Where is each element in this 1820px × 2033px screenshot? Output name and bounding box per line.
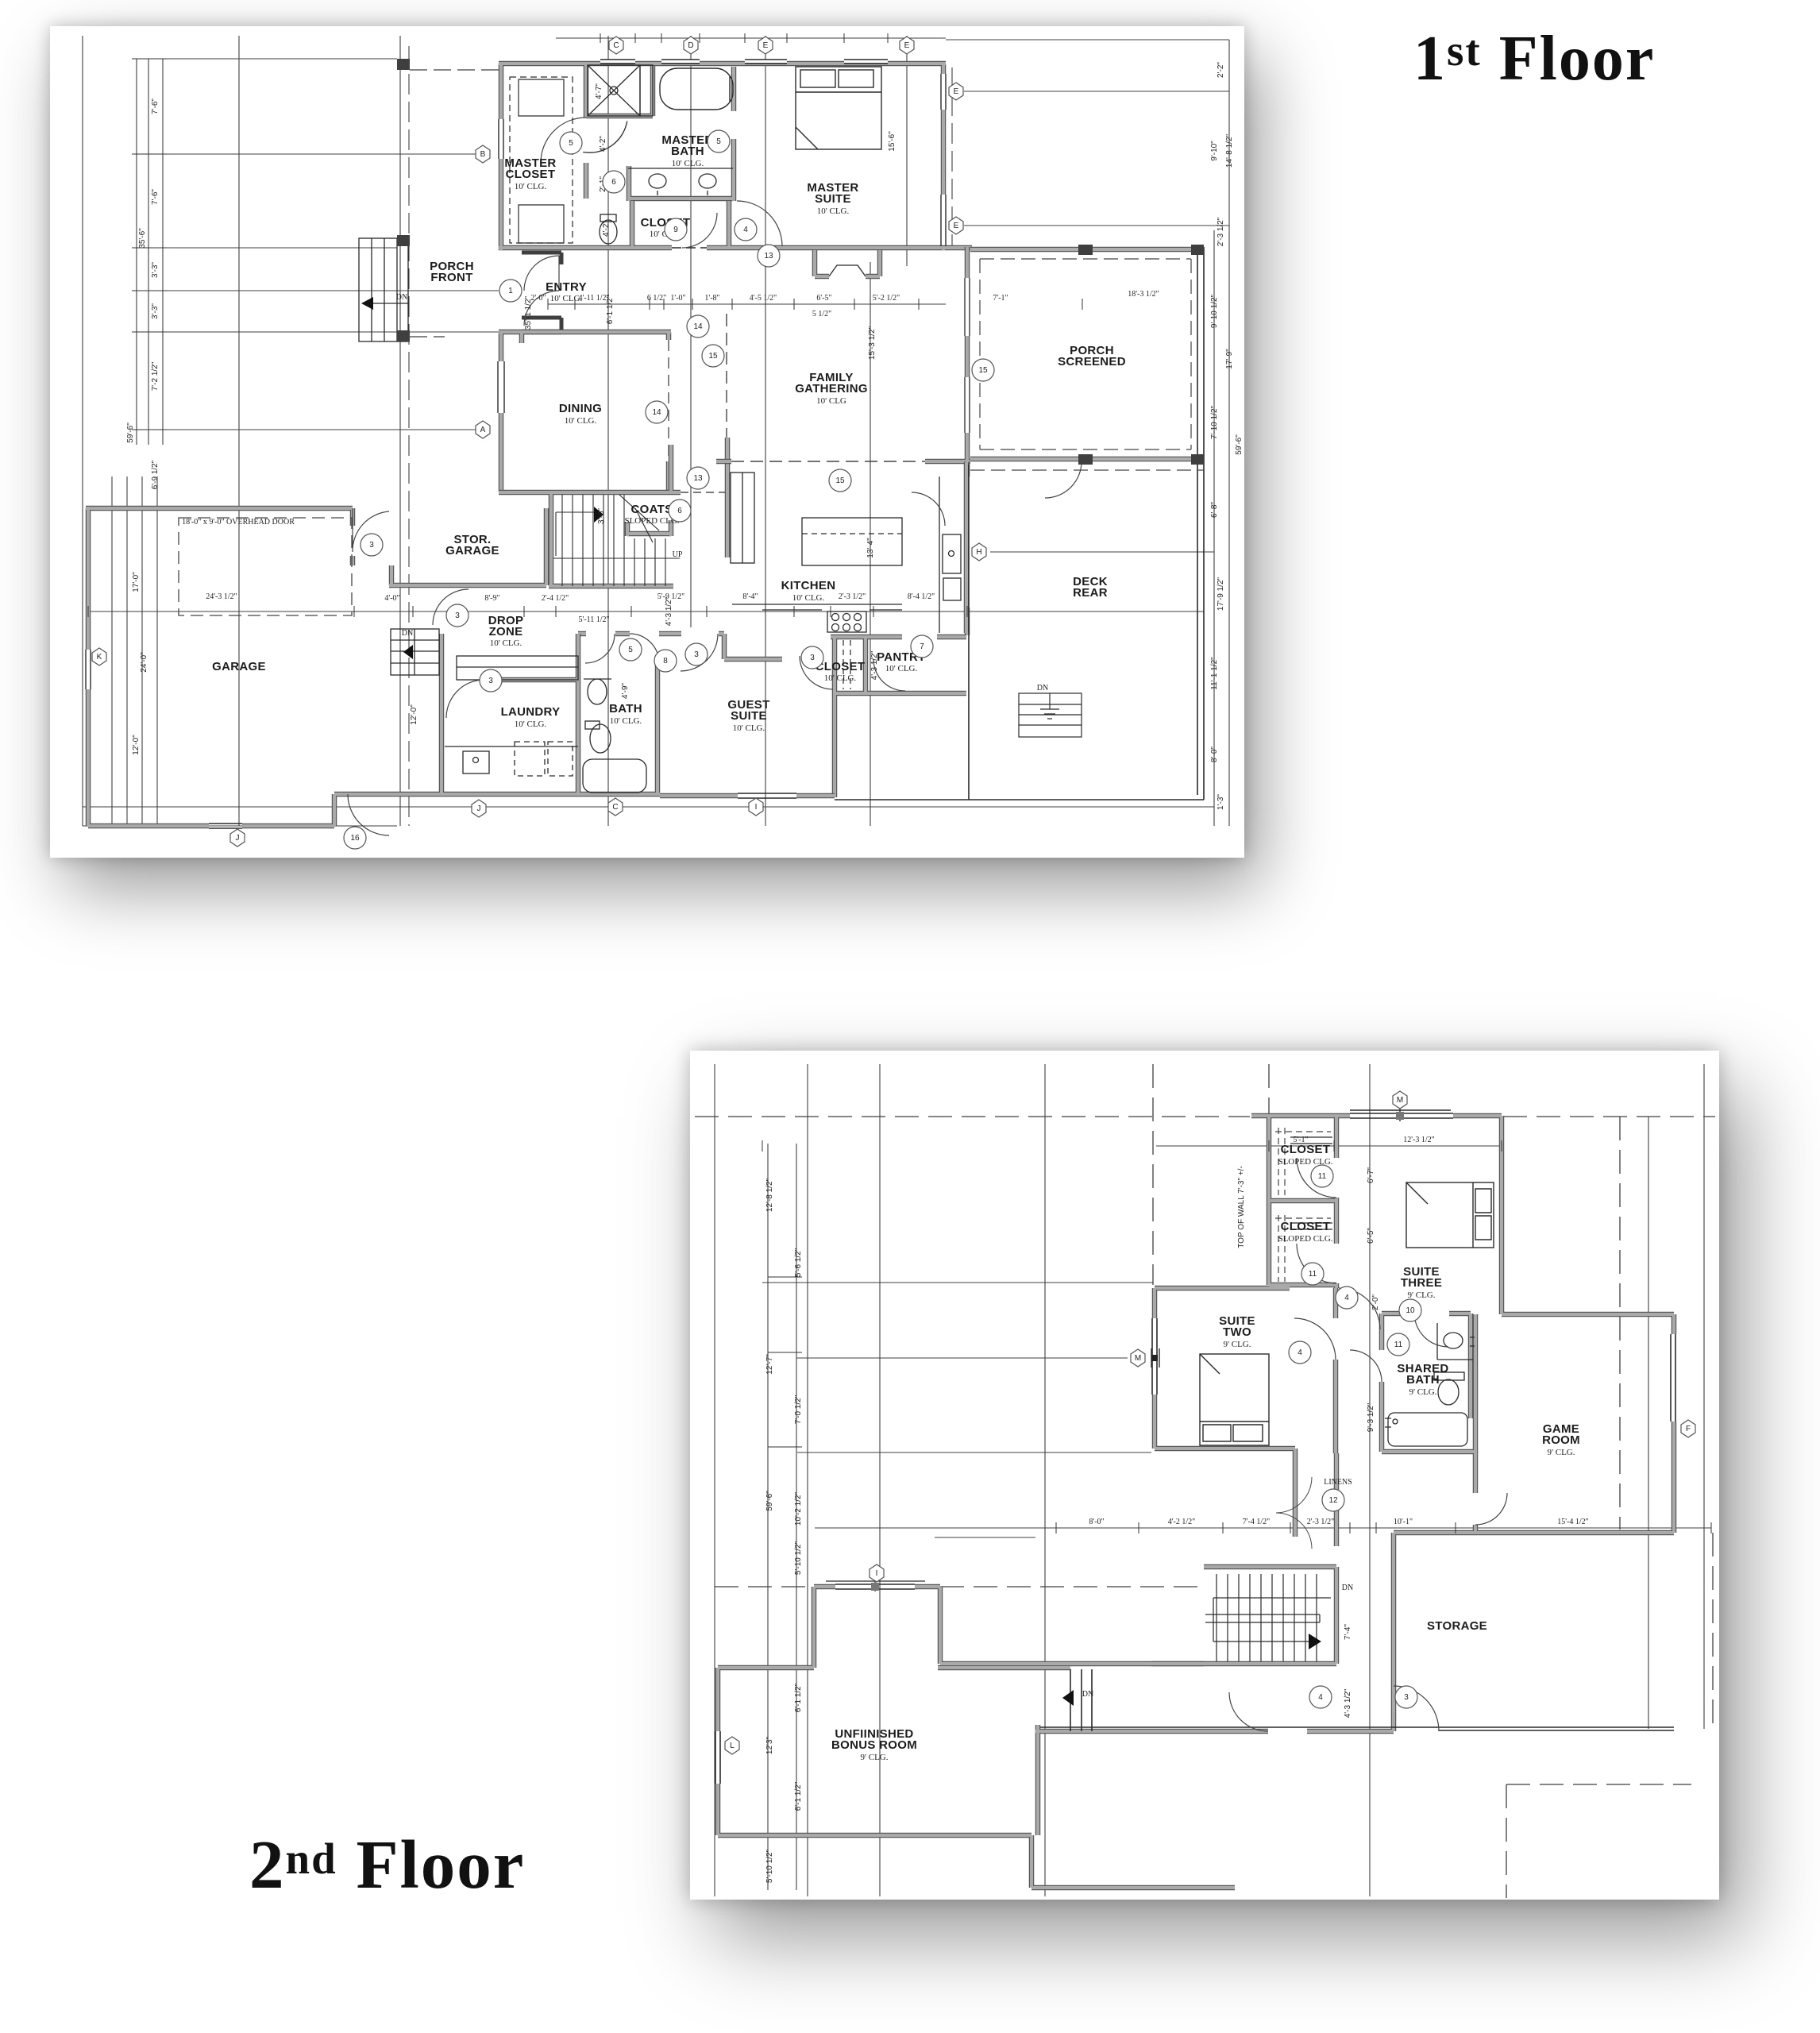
svg-text:REAR: REAR xyxy=(1073,586,1108,600)
svg-text:11'-1 1/2": 11'-1 1/2" xyxy=(1210,657,1219,690)
svg-text:9' CLG.: 9' CLG. xyxy=(1408,1290,1436,1300)
svg-text:ROOM: ROOM xyxy=(1542,1433,1580,1447)
svg-text:10'-1": 10'-1" xyxy=(1394,1518,1413,1526)
svg-text:13: 13 xyxy=(693,474,703,483)
svg-text:8'-4": 8'-4" xyxy=(742,592,758,601)
svg-text:DN: DN xyxy=(1037,684,1048,692)
svg-text:10' CLG.: 10' CLG. xyxy=(817,206,850,216)
svg-text:9'-10": 9'-10" xyxy=(1210,141,1219,161)
svg-text:BATH: BATH xyxy=(1406,1373,1440,1387)
svg-text:14: 14 xyxy=(693,322,703,331)
svg-text:4'-7": 4'-7" xyxy=(595,83,603,99)
svg-text:15: 15 xyxy=(978,366,988,375)
svg-text:6'-1 1/2": 6'-1 1/2" xyxy=(794,1781,803,1811)
svg-text:SCREENED: SCREENED xyxy=(1058,355,1126,368)
svg-text:1'-0": 1'-0" xyxy=(670,294,685,303)
svg-text:5'-10 1/2": 5'-10 1/2" xyxy=(794,1541,803,1575)
svg-text:10' CLG.: 10' CLG. xyxy=(515,719,547,729)
svg-text:B: B xyxy=(480,150,486,159)
svg-text:18'-3 1/2": 18'-3 1/2" xyxy=(1128,290,1159,299)
svg-text:2'-3 1/2": 2'-3 1/2" xyxy=(839,592,866,601)
svg-text:4: 4 xyxy=(1344,1294,1349,1302)
svg-text:LINENS: LINENS xyxy=(1324,1478,1352,1487)
svg-text:1'-3": 1'-3" xyxy=(1217,794,1225,810)
svg-text:4'-5 1/2": 4'-5 1/2" xyxy=(750,294,777,303)
svg-text:10' CLG.: 10' CLG. xyxy=(824,673,857,683)
svg-text:CLOSET: CLOSET xyxy=(506,168,556,181)
svg-text:3: 3 xyxy=(1404,1693,1409,1702)
svg-text:5'-11 1/2": 5'-11 1/2" xyxy=(578,615,609,624)
svg-text:ENTRY: ENTRY xyxy=(546,280,587,294)
svg-text:4'-0": 4'-0" xyxy=(384,594,399,603)
svg-text:CLOSET: CLOSET xyxy=(1281,1143,1331,1156)
svg-text:10' CLG.: 10' CLG. xyxy=(672,159,704,168)
svg-text:6'-1 1/2": 6'-1 1/2" xyxy=(606,295,615,324)
svg-text:6'-1 1/2": 6'-1 1/2" xyxy=(794,1683,803,1712)
svg-text:7'-1": 7'-1" xyxy=(993,294,1008,303)
svg-text:E: E xyxy=(763,41,769,50)
svg-text:15'-3 1/2": 15'-3 1/2" xyxy=(868,326,877,360)
svg-text:11: 11 xyxy=(1318,1172,1327,1181)
svg-text:5: 5 xyxy=(569,139,573,148)
svg-text:3'-3": 3'-3" xyxy=(151,303,160,319)
svg-text:17'-9 1/2": 17'-9 1/2" xyxy=(1217,577,1225,611)
svg-text:10' CLG.: 10' CLG. xyxy=(490,638,522,648)
svg-text:8: 8 xyxy=(663,657,668,665)
svg-text:10' CLG.: 10' CLG. xyxy=(565,416,597,426)
svg-text:SUITE: SUITE xyxy=(815,192,851,206)
svg-text:LAUNDRY: LAUNDRY xyxy=(501,705,561,719)
svg-text:BONUS ROOM: BONUS ROOM xyxy=(831,1738,917,1752)
svg-text:2'-0": 2'-0" xyxy=(1371,1294,1380,1310)
svg-text:11: 11 xyxy=(1309,1270,1317,1279)
svg-text:13: 13 xyxy=(764,252,773,260)
svg-text:F: F xyxy=(1686,1425,1691,1433)
svg-text:DN: DN xyxy=(402,629,413,638)
svg-text:6 1/2": 6 1/2" xyxy=(647,294,666,303)
svg-text:3: 3 xyxy=(488,677,493,685)
svg-text:10' CLG.: 10' CLG. xyxy=(515,182,547,191)
svg-text:10' CLG: 10' CLG xyxy=(816,396,846,406)
svg-text:ZONE: ZONE xyxy=(489,625,523,638)
svg-text:7'-6": 7'-6" xyxy=(151,98,160,114)
svg-text:A: A xyxy=(480,426,486,434)
svg-text:4'-2": 4'-2" xyxy=(602,221,611,237)
svg-text:4'-3 1/2": 4'-3 1/2" xyxy=(665,596,673,626)
svg-text:E: E xyxy=(954,87,959,96)
svg-text:CLOSET: CLOSET xyxy=(1281,1220,1331,1233)
svg-text:9' CLG.: 9' CLG. xyxy=(1409,1387,1437,1397)
svg-text:3'-3": 3'-3" xyxy=(151,262,160,278)
svg-text:I: I xyxy=(876,1569,878,1578)
svg-text:7: 7 xyxy=(920,642,924,651)
svg-text:C: C xyxy=(613,41,619,50)
svg-text:7'-0 1/2": 7'-0 1/2" xyxy=(794,1395,803,1424)
svg-text:6'-7": 6'-7" xyxy=(1367,1167,1375,1183)
svg-text:KITCHEN: KITCHEN xyxy=(781,579,836,592)
svg-text:59'-6": 59'-6" xyxy=(126,422,135,443)
svg-text:C: C xyxy=(612,803,618,812)
svg-text:7'-4": 7'-4" xyxy=(1344,1624,1352,1640)
svg-text:17'-0": 17'-0" xyxy=(132,572,141,592)
svg-text:14: 14 xyxy=(652,408,661,417)
svg-text:4'-3 1/2": 4'-3 1/2" xyxy=(870,650,879,680)
svg-text:DN: DN xyxy=(396,293,407,302)
svg-text:4: 4 xyxy=(1298,1348,1302,1357)
svg-text:2'-3 1/2": 2'-3 1/2" xyxy=(1217,217,1225,246)
svg-text:BATH: BATH xyxy=(671,145,704,158)
svg-text:5'-1": 5'-1" xyxy=(1293,1136,1308,1144)
svg-text:E: E xyxy=(954,222,959,230)
svg-text:15: 15 xyxy=(835,476,845,485)
svg-text:10' CLG.: 10' CLG. xyxy=(610,716,642,726)
svg-text:4'-3 1/2": 4'-3 1/2" xyxy=(1344,1688,1352,1718)
svg-text:8'-0": 8'-0" xyxy=(1089,1518,1104,1526)
svg-text:4'-11 1/2": 4'-11 1/2" xyxy=(578,294,609,303)
svg-text:4'-2": 4'-2" xyxy=(599,136,607,152)
svg-text:6'-9 1/2": 6'-9 1/2" xyxy=(151,460,160,489)
svg-text:10' CLG.: 10' CLG. xyxy=(885,664,918,673)
svg-text:9' CLG.: 9' CLG. xyxy=(1224,1340,1251,1349)
svg-text:3: 3 xyxy=(810,654,815,662)
svg-text:12'-3 1/2": 12'-3 1/2" xyxy=(1403,1136,1435,1144)
svg-text:13'-4": 13'-4" xyxy=(866,538,875,558)
svg-text:17'-9": 17'-9" xyxy=(1225,349,1234,369)
svg-text:7'-4 1/2": 7'-4 1/2" xyxy=(1243,1518,1271,1526)
svg-text:12'-0": 12'-0" xyxy=(410,704,418,725)
svg-text:K: K xyxy=(97,653,102,662)
svg-text:12'-8 1/2": 12'-8 1/2" xyxy=(765,1178,774,1212)
svg-text:2'-4 1/2": 2'-4 1/2" xyxy=(542,594,569,603)
svg-text:18'-0" x 9'-0" OVERHEAD DOOR: 18'-0" x 9'-0" OVERHEAD DOOR xyxy=(182,518,295,527)
svg-text:M: M xyxy=(1397,1096,1403,1105)
svg-text:8'-4 1/2": 8'-4 1/2" xyxy=(908,592,935,601)
svg-text:4: 4 xyxy=(1318,1693,1323,1702)
svg-text:24'-0": 24'-0" xyxy=(140,652,148,673)
svg-text:4'-2 1/2": 4'-2 1/2" xyxy=(1168,1518,1196,1526)
svg-text:5'-6 1/2": 5'-6 1/2" xyxy=(794,1248,803,1277)
svg-text:3: 3 xyxy=(369,541,374,550)
svg-text:9' CLG.: 9' CLG. xyxy=(861,1753,889,1762)
svg-text:2'-0": 2'-0" xyxy=(530,294,546,303)
svg-text:12'-7": 12'-7" xyxy=(765,1354,774,1375)
svg-text:24'-3 1/2": 24'-3 1/2" xyxy=(206,592,237,601)
svg-text:12'3": 12'3" xyxy=(765,1736,774,1754)
svg-text:J: J xyxy=(236,834,240,843)
svg-text:7'-6": 7'-6" xyxy=(151,189,160,205)
svg-text:DN: DN xyxy=(1082,1690,1093,1699)
svg-text:FRONT: FRONT xyxy=(430,271,472,284)
svg-text:COATS: COATS xyxy=(631,503,673,516)
svg-text:3: 3 xyxy=(455,611,460,620)
svg-text:L: L xyxy=(730,1742,735,1750)
svg-text:SUITE: SUITE xyxy=(731,709,767,723)
svg-text:3'-6": 3'-6" xyxy=(597,508,606,524)
svg-text:J: J xyxy=(477,804,481,813)
svg-text:15'-6": 15'-6" xyxy=(888,131,897,152)
svg-text:5: 5 xyxy=(716,137,721,146)
svg-text:12'-0": 12'-0" xyxy=(132,735,141,755)
svg-text:5'-2 1/2": 5'-2 1/2" xyxy=(873,294,900,303)
svg-text:16: 16 xyxy=(350,834,360,843)
svg-text:10: 10 xyxy=(1405,1306,1415,1315)
svg-text:4'-9": 4'-9" xyxy=(621,683,630,699)
svg-text:D: D xyxy=(688,41,693,50)
svg-text:6'-5": 6'-5" xyxy=(816,294,831,303)
svg-text:GARAGE: GARAGE xyxy=(445,544,499,557)
svg-text:1: 1 xyxy=(508,287,513,295)
svg-text:3: 3 xyxy=(694,650,699,659)
svg-text:10' CLG.: 10' CLG. xyxy=(550,294,583,303)
svg-text:9'-3 1/2": 9'-3 1/2" xyxy=(1367,1402,1375,1432)
svg-text:TWO: TWO xyxy=(1223,1325,1251,1339)
svg-text:14'-8 1/2": 14'-8 1/2" xyxy=(1225,133,1234,168)
svg-text:15'-4 1/2": 15'-4 1/2" xyxy=(1557,1518,1589,1526)
svg-text:5'-10 1/2": 5'-10 1/2" xyxy=(765,1849,774,1883)
svg-text:BATH: BATH xyxy=(609,702,642,716)
svg-text:6: 6 xyxy=(677,507,682,515)
svg-text:7'-10 1/2": 7'-10 1/2" xyxy=(1210,405,1219,439)
svg-text:5 1/2": 5 1/2" xyxy=(812,310,831,318)
svg-text:11: 11 xyxy=(1394,1341,1403,1349)
svg-text:1'-8": 1'-8" xyxy=(704,294,719,303)
svg-text:59'-6": 59'-6" xyxy=(1235,434,1244,455)
svg-text:2'-2": 2'-2" xyxy=(1217,62,1225,78)
svg-text:9' CLG.: 9' CLG. xyxy=(1548,1448,1575,1457)
svg-text:12: 12 xyxy=(1328,1496,1338,1505)
svg-text:4: 4 xyxy=(743,226,748,234)
svg-text:9'-10 1/2": 9'-10 1/2" xyxy=(1210,294,1219,328)
svg-text:7'-2 1/2": 7'-2 1/2" xyxy=(151,361,160,391)
svg-text:15: 15 xyxy=(708,352,718,361)
svg-text:GARAGE: GARAGE xyxy=(212,660,266,673)
svg-text:6: 6 xyxy=(611,178,616,187)
svg-text:35'-6": 35'-6" xyxy=(138,228,147,249)
svg-text:SLOPED CLG.: SLOPED CLG. xyxy=(1278,1234,1332,1244)
svg-text:E: E xyxy=(904,41,910,50)
svg-text:DINING: DINING xyxy=(559,402,602,415)
svg-text:H: H xyxy=(976,548,981,557)
svg-text:6'-8": 6'-8" xyxy=(1210,502,1219,518)
svg-text:35'-1 1/2": 35'-1 1/2" xyxy=(524,295,533,330)
svg-text:I: I xyxy=(755,803,758,812)
svg-text:59'-6": 59'-6" xyxy=(765,1491,774,1511)
svg-text:10' CLG.: 10' CLG. xyxy=(792,593,825,603)
svg-text:9: 9 xyxy=(673,226,678,234)
svg-text:8'-0": 8'-0" xyxy=(1210,746,1219,762)
svg-text:THREE: THREE xyxy=(1401,1276,1442,1290)
svg-text:GATHERING: GATHERING xyxy=(795,382,868,395)
svg-text:DN: DN xyxy=(1342,1584,1353,1592)
svg-text:6'-5": 6'-5" xyxy=(1367,1228,1375,1244)
svg-text:8'-9": 8'-9" xyxy=(484,594,499,603)
svg-text:M: M xyxy=(1135,1354,1141,1363)
svg-text:10'-2 1/2": 10'-2 1/2" xyxy=(794,1491,803,1526)
svg-text:5: 5 xyxy=(628,646,633,654)
svg-text:2'-3 1/2": 2'-3 1/2" xyxy=(1307,1518,1335,1526)
svg-text:STORAGE: STORAGE xyxy=(1427,1619,1487,1633)
svg-text:10' CLG.: 10' CLG. xyxy=(733,723,765,733)
svg-text:TOP OF WALL 7'-3" +/-: TOP OF WALL 7'-3" +/- xyxy=(1237,1166,1246,1248)
svg-text:UP: UP xyxy=(673,550,683,559)
